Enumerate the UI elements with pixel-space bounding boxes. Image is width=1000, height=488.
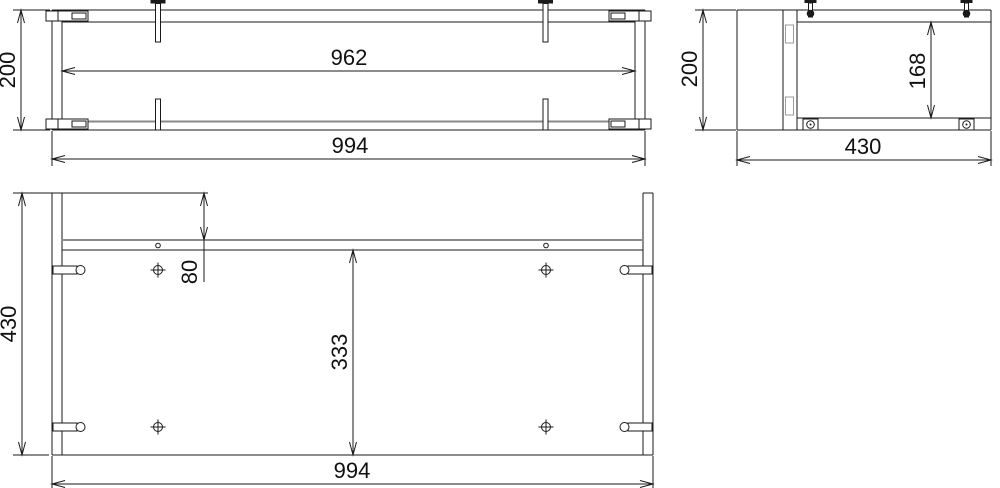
dimension-label: 994 bbox=[334, 458, 371, 483]
dowel-front-right-icon bbox=[620, 423, 652, 432]
wall-bracket-bottom-left bbox=[46, 119, 88, 129]
dowel-front-left-icon bbox=[53, 423, 85, 432]
dimension-label: 200 bbox=[677, 51, 702, 88]
sheet-background bbox=[0, 0, 1000, 488]
hanging-rail-profile bbox=[783, 10, 797, 130]
dimension-label: 994 bbox=[332, 133, 369, 158]
dimension-label: 80 bbox=[177, 260, 202, 284]
dimension-label: 430 bbox=[0, 306, 21, 343]
dimension-label: 430 bbox=[845, 134, 882, 159]
dimension-label: 200 bbox=[0, 52, 20, 89]
dowel-back-left-icon bbox=[53, 266, 85, 275]
wall-bracket-bottom-right bbox=[609, 119, 651, 129]
dimension-label: 333 bbox=[327, 334, 352, 371]
dowel-back-right-icon bbox=[620, 266, 652, 275]
wall-bracket-top-left bbox=[46, 11, 88, 21]
bottom-pin-left-icon bbox=[156, 99, 161, 130]
dimension-label: 962 bbox=[331, 45, 368, 70]
technical-drawing-sheet: 96299420020016843043080333994 bbox=[0, 0, 1000, 488]
bottom-pin-right-icon bbox=[543, 99, 548, 130]
wall-bracket-top-right bbox=[609, 11, 651, 21]
dimension-label: 168 bbox=[905, 53, 930, 90]
